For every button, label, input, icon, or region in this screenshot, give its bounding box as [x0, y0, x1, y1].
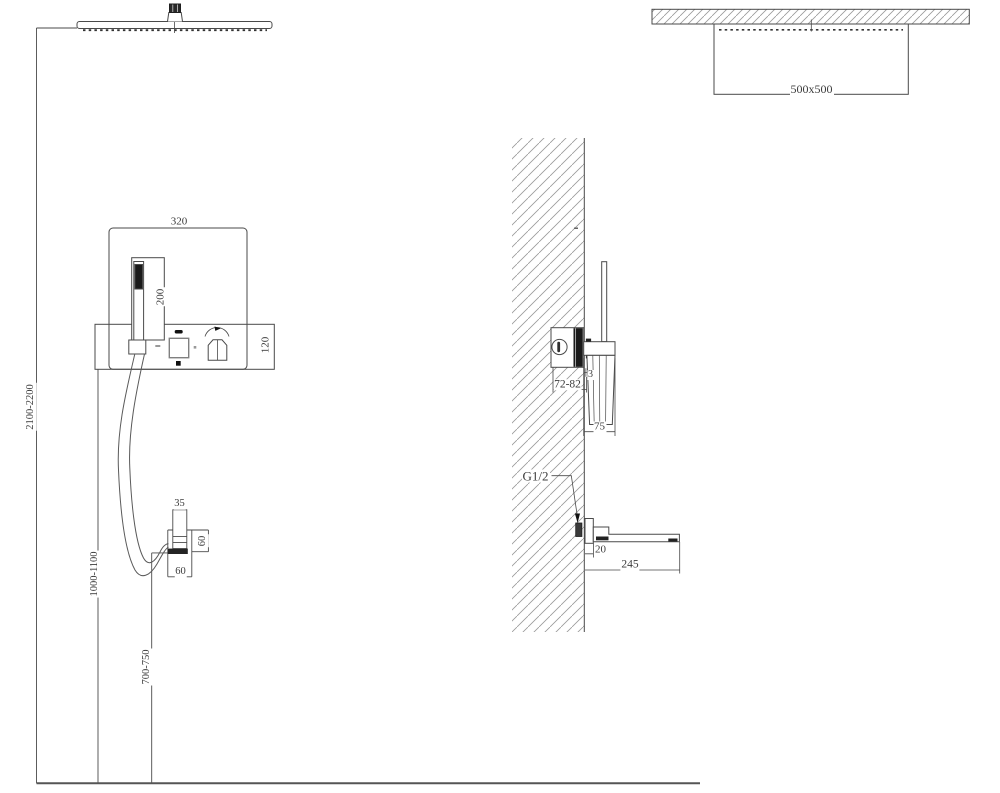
- ceiling-hatch: [652, 9, 969, 24]
- marker-right: [194, 346, 197, 349]
- wand-holder: [129, 340, 146, 354]
- dim-35-label: 35: [173, 499, 186, 510]
- installation-drawing: 320 200 120 2100-2200 1000-1100 700-750 …: [0, 0, 1000, 793]
- dim-2100-2200-label: 2100-2200: [26, 383, 37, 431]
- dim-320-label: 320: [170, 217, 189, 228]
- dim-1000-1100-label: 1000-1100: [90, 550, 101, 597]
- control-panel: [95, 228, 274, 369]
- handshower-handle-rod: [602, 262, 607, 342]
- dim-500x500-label: 500x500: [790, 83, 834, 95]
- dim-245-label: 245: [620, 559, 639, 571]
- holder-bracket-side: [584, 342, 615, 356]
- shower-hose: [118, 354, 168, 576]
- dim-120-label: 120: [260, 335, 271, 354]
- dim-20-label: 20: [594, 545, 607, 556]
- dim-700-750-label: 700-750: [142, 649, 153, 686]
- handshower-side: [584, 262, 615, 436]
- handshower-head-side: [587, 355, 615, 424]
- valve-trim-dark: [574, 328, 583, 367]
- dim-72-82-label: 72-82: [553, 379, 582, 391]
- supply-nut: [170, 4, 181, 13]
- wand-spray-face: [135, 265, 143, 290]
- outlet-connector: [168, 549, 188, 554]
- marker-bottom: [176, 361, 181, 366]
- spout-wall-plate: [585, 519, 593, 544]
- side-view: [512, 9, 969, 632]
- dim-3-label: 3: [587, 370, 594, 380]
- dim-60-bottom-label: 60: [174, 567, 187, 578]
- supply-fitting: [576, 523, 582, 537]
- spout-outlet: [668, 539, 677, 542]
- thread-g12-label: G1/2: [522, 469, 550, 482]
- rain-shower-head-front: [77, 4, 272, 33]
- dim-20-lines: [585, 543, 593, 557]
- dim-75-label: 75: [593, 422, 606, 433]
- dim-200-label: 200: [155, 287, 166, 306]
- marker-top: [175, 330, 183, 334]
- marker-left: [155, 345, 160, 347]
- dim-60-right-label: 60: [197, 535, 208, 548]
